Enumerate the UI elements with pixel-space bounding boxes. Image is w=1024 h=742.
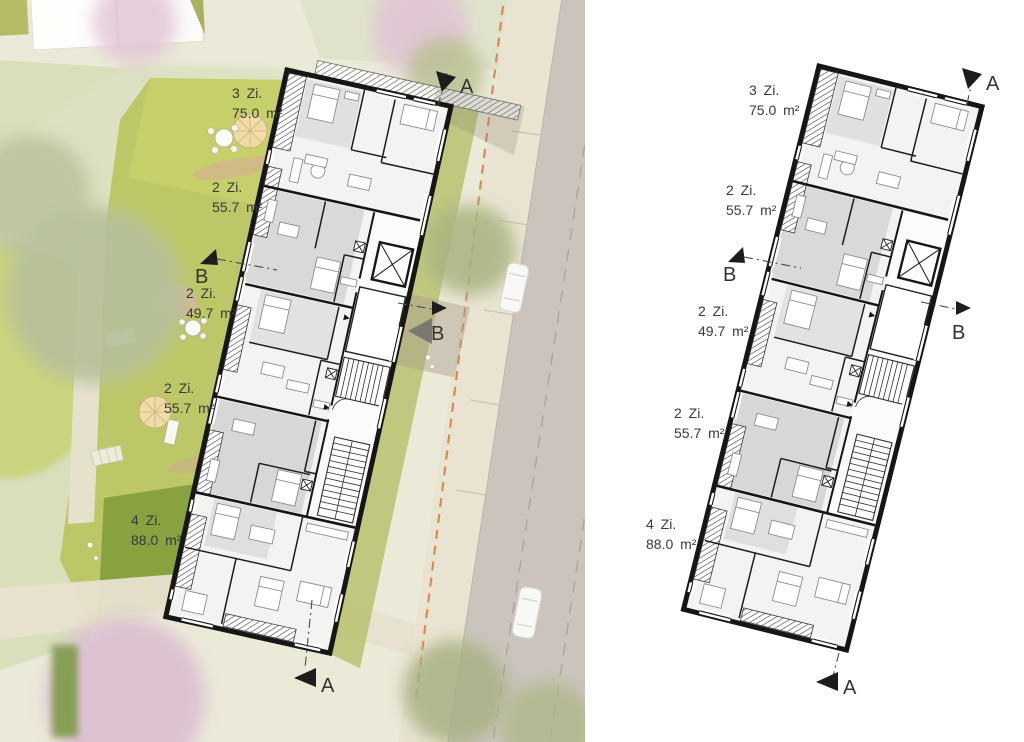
apartment-rooms: 3 Zi. [232,84,282,104]
apartment-rooms: 2 Zi. [698,302,748,322]
apartment-label-2zi-b-plan: 2 Zi. 49.7 m² [698,302,748,341]
apartment-area: 88.0 m² [646,535,696,555]
apartment-label-2zi-a-plan: 2 Zi. 55.7 m² [726,181,776,220]
apartment-label-4zi-site: 4 Zi. 88.0 m² [131,511,181,550]
apartment-label-4zi-plan: 4 Zi. 88.0 m² [646,515,696,554]
apartment-label-2zi-b-site: 2 Zi. 49.7 m² [186,284,236,323]
apartment-area: 55.7 m² [164,399,214,419]
apartment-area: 88.0 m² [131,531,181,551]
section-arrow-icon [962,68,982,89]
round-table [215,129,233,147]
section-letter: B [952,322,965,344]
apartment-label-2zi-c-plan: 2 Zi. 55.7 m² [674,404,724,443]
apartment-label-3zi-site: 3 Zi. 75.0 m² [232,84,282,123]
apartment-rooms: 2 Zi. [726,181,776,201]
apartment-rooms: 4 Zi. [131,511,181,531]
section-letter: A [986,73,1000,95]
screenshot-root: A B B A A B B A 3 Zi. 75.0 m² 2 [0,0,1024,742]
apartment-area: 55.7 m² [726,201,776,221]
section-letter: A [843,677,857,699]
apartment-rooms: 3 Zi. [749,81,799,101]
hedge [52,645,78,737]
apartment-area: 49.7 m² [186,304,236,324]
section-marker-a-bottom-right: A [816,653,857,699]
apartment-rooms: 2 Zi. [674,404,724,424]
section-marker-a-top-right: A [962,68,1000,104]
apartment-label-2zi-a-site: 2 Zi. 55.7 m² [212,178,262,217]
section-letter: B [431,323,444,345]
apartment-area: 55.7 m² [212,198,262,218]
apartment-area: 55.7 m² [674,424,724,444]
section-letter: A [460,76,474,98]
apartment-label-2zi-c-site: 2 Zi. 55.7 m² [164,379,214,418]
apartment-rooms: 2 Zi. [212,178,262,198]
apartment-rooms: 2 Zi. [164,379,214,399]
apartment-area: 75.0 m² [749,101,799,121]
apartment-area: 75.0 m² [232,104,282,124]
section-arrow-icon [816,672,838,691]
apartment-label-3zi-plan: 3 Zi. 75.0 m² [749,81,799,120]
section-letter: A [321,675,335,697]
building-floor-plan-isolated [683,65,983,650]
site-plan-panel [0,0,664,742]
section-letter: B [723,264,736,286]
section-arrow-icon [956,301,971,315]
scene-canvas: A B B A A B B A [0,0,1024,742]
apartment-rooms: 2 Zi. [186,284,236,304]
apartment-area: 49.7 m² [698,322,748,342]
section-arrow-icon [728,247,745,263]
apartment-rooms: 4 Zi. [646,515,696,535]
